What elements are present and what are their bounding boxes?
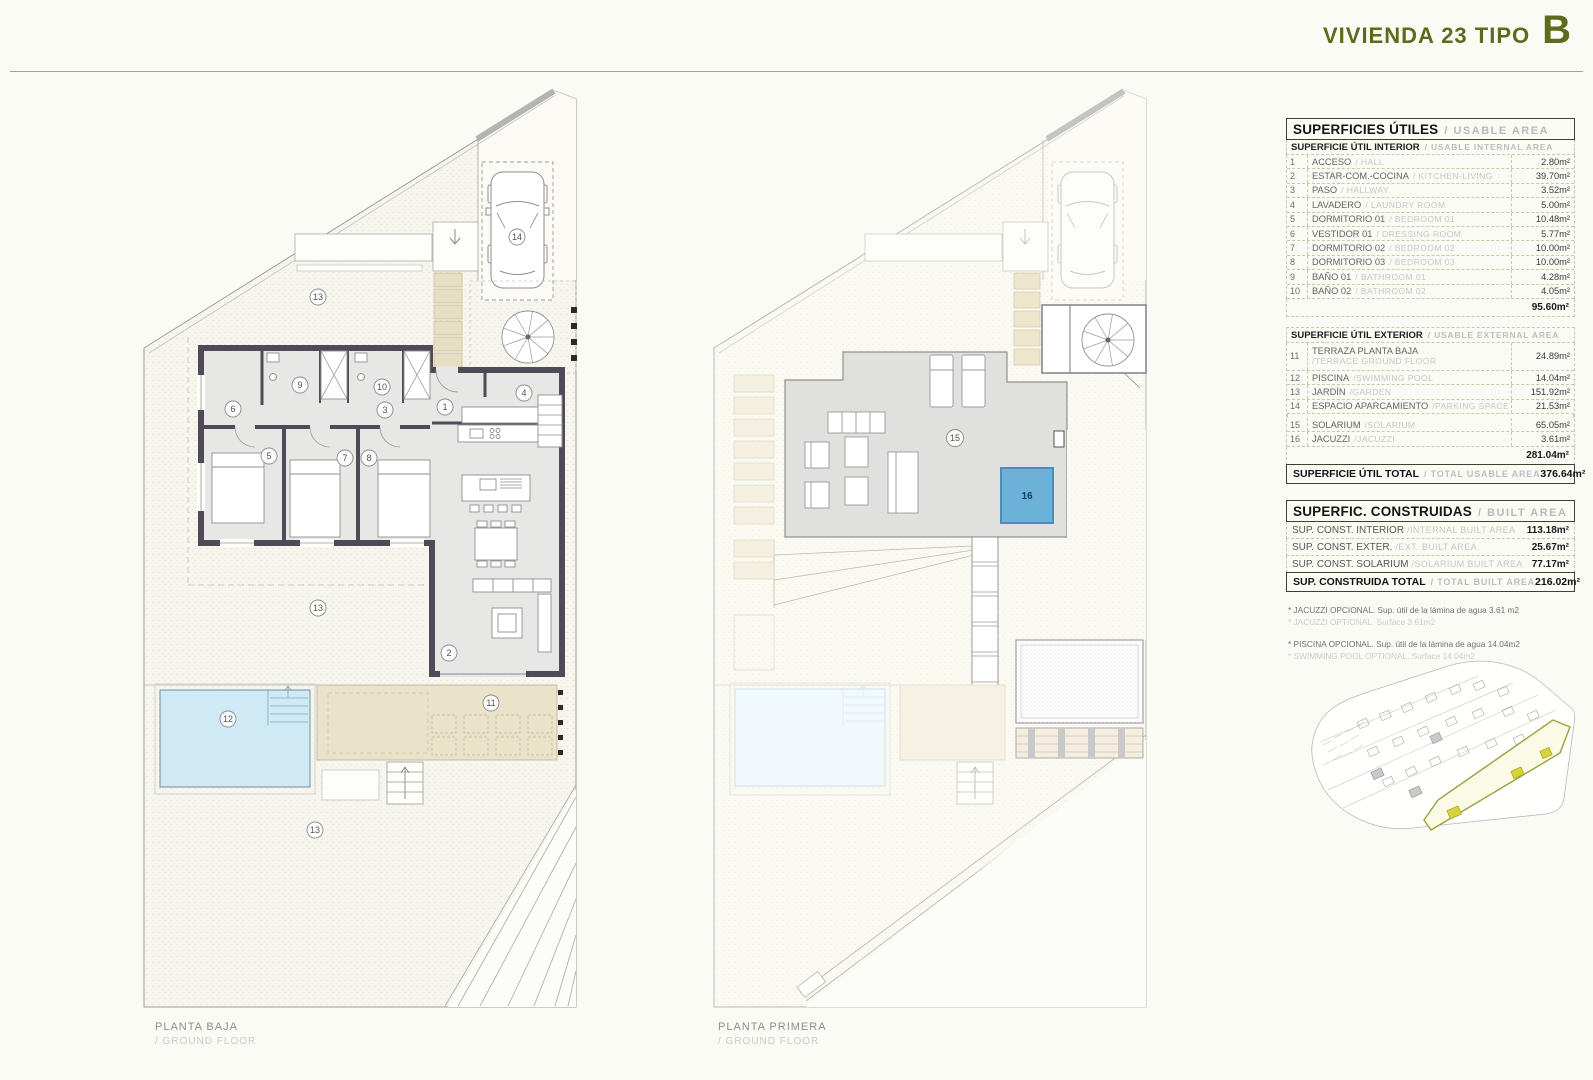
table-row: 8 DORMITORIO 03/ BEDROOM 03 10.00m²: [1287, 256, 1574, 270]
svg-text:6: 6: [230, 404, 235, 414]
area-tables-panel: SUPERFICIES ÚTILES / USABLE AREA SUPERFI…: [1286, 118, 1575, 672]
table-row: 1 ACCESO/ HALL 2.80m²: [1287, 155, 1574, 169]
svg-text:4: 4: [521, 388, 526, 398]
table-row: 6 VESTIDOR 01/ DRESSING ROOM 5.77m²: [1287, 227, 1574, 241]
pool: [155, 684, 315, 794]
interior-subtotal: 95.60m²: [1286, 299, 1575, 317]
caption-en: / GROUND FLOOR: [155, 1036, 256, 1047]
ghost-pool-terrace: [713, 683, 1005, 804]
svg-text:13: 13: [310, 825, 320, 835]
svg-text:10: 10: [377, 382, 387, 392]
pergola-beams: [1016, 728, 1143, 758]
built-area-title: SUPERFIC. CONSTRUIDAS / BUILT AREA: [1286, 500, 1575, 522]
header-divider: [10, 71, 1583, 72]
table-row: 4 LAVADERO/ LAUNDRY ROOM 5.00m²: [1287, 198, 1574, 212]
exterior-rows: 11 TERRAZA PLANTA BAJA/TERRACE GROUND FL…: [1286, 343, 1575, 447]
table-row: 9 BAÑO 01/ BATHROOM 01 4.28m²: [1287, 270, 1574, 284]
table-row: 3 PASO/ HALLWAY 3.52m²: [1287, 184, 1574, 198]
svg-text:12: 12: [223, 714, 233, 724]
ground-floor-caption: PLANTA BAJA / GROUND FLOOR: [155, 1021, 256, 1047]
table-row: SUP. CONST. SOLARIUM/SOLARIUM BUILT AREA…: [1286, 556, 1575, 573]
usable-total-row: SUPERFICIE ÚTIL TOTAL / TOTAL USABLE ARE…: [1286, 464, 1575, 484]
caption-es: PLANTA BAJA: [155, 1021, 256, 1033]
table-row: 10 BAÑO 02/ BATHROOM 02 4.05m²: [1287, 285, 1574, 299]
svg-text:3: 3: [382, 405, 387, 415]
sheet-title: VIVIENDA 23 TIPO: [1323, 23, 1530, 49]
built-total-row: SUP. CONSTRUIDA TOTAL / TOTAL BUILT AREA…: [1286, 572, 1575, 592]
entry-walkway: [433, 222, 478, 271]
interior-stair: [538, 395, 562, 447]
ground-floor-plan: 13 14 9 10 6 3 1 4 5 7 8 2 13 12 11 13: [140, 85, 580, 1010]
svg-text:2: 2: [446, 648, 451, 658]
caption-es: PLANTA PRIMERA: [718, 1021, 827, 1033]
svg-text:16: 16: [1021, 491, 1033, 502]
ghost-steps: [957, 762, 993, 804]
table-row: 7 DORMITORIO 02/ BEDROOM 02 10.00m²: [1287, 241, 1574, 255]
svg-text:8: 8: [366, 453, 371, 463]
svg-text:13: 13: [313, 603, 323, 613]
svg-text:1: 1: [442, 402, 447, 412]
table-row: 11 TERRAZA PLANTA BAJA/TERRACE GROUND FL…: [1287, 343, 1574, 371]
site-location-map: [1298, 650, 1580, 855]
door-marker: [1054, 431, 1064, 447]
svg-text:9: 9: [297, 380, 302, 390]
table-row: 12 PISCINA/SWIMMING POOL 14.04m²: [1287, 371, 1574, 385]
table-row: 14 ESPACIO APARCAMIENTO/PARKING SPACE 21…: [1287, 400, 1574, 414]
usable-area-table: SUPERFICIES ÚTILES / USABLE AREA SUPERFI…: [1286, 118, 1575, 484]
table-row: 13 JARDÍN/GARDEN 151.92m²: [1287, 385, 1574, 399]
built-area-table: SUPERFIC. CONSTRUIDAS / BUILT AREA SUP. …: [1286, 500, 1575, 592]
table-row: 2 ESTAR-COM.-COCINA/ KITCHEN-LIVING 39.7…: [1287, 169, 1574, 183]
car-icon: [1058, 172, 1117, 288]
svg-text:11: 11: [486, 698, 495, 708]
floor-plan-sheet: VIVIENDA 23 TIPO B: [0, 0, 1593, 1080]
upper-garden-steps: [1014, 273, 1040, 365]
interior-rows: 1 ACCESO/ HALL 2.80m² 2 ESTAR-COM.-COCIN…: [1286, 155, 1575, 299]
first-floor-plan: 15 16: [710, 85, 1150, 1010]
svg-text:15: 15: [950, 433, 960, 443]
table-row: SUP. CONST. INTERIOR/INTERNAL BUILT AREA…: [1286, 522, 1575, 539]
table-row: SUP. CONST. EXTER./EXT. BUILT AREA 25.67…: [1286, 539, 1575, 556]
svg-text:13: 13: [313, 292, 323, 302]
exterior-header: SUPERFICIE ÚTIL EXTERIOR / USABLE EXTERN…: [1286, 327, 1575, 343]
sheet-title-type-letter: B: [1542, 10, 1571, 50]
sheet-header: VIVIENDA 23 TIPO B: [1323, 10, 1571, 50]
svg-text:7: 7: [342, 453, 347, 463]
usable-area-title: SUPERFICIES ÚTILES / USABLE AREA: [1286, 118, 1575, 140]
table-row: 16 JACUZZI/JACUZZI 3.61m²: [1287, 432, 1574, 446]
exterior-subtotal: 281.04m²: [1286, 447, 1575, 465]
interior-header: SUPERFICIE ÚTIL INTERIOR / USABLE INTERN…: [1286, 140, 1575, 155]
footnote-jacuzzi: * JACUZZI OPCIONAL. Sup. útil de la lámi…: [1288, 604, 1575, 629]
first-floor-caption: PLANTA PRIMERA / GROUND FLOOR: [718, 1021, 827, 1047]
table-row: 15 SOLARIUM/SOLARIUM 65.05m²: [1287, 418, 1574, 432]
terrace: [317, 685, 563, 760]
caption-en: / GROUND FLOOR: [718, 1036, 827, 1047]
dining-table: [475, 521, 517, 567]
table-row: 5 DORMITORIO 01/ BEDROOM 01 10.48m²: [1287, 213, 1574, 227]
svg-text:14: 14: [512, 232, 522, 242]
svg-text:5: 5: [266, 451, 271, 461]
